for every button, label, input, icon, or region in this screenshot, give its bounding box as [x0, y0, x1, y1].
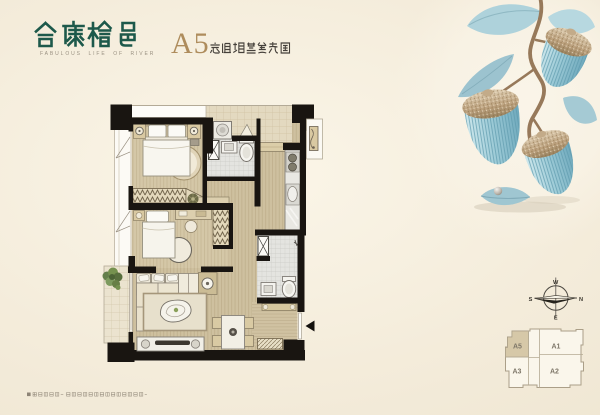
svg-text:N: N [579, 297, 583, 303]
svg-text:A5: A5 [513, 344, 522, 351]
svg-text:A3: A3 [513, 369, 522, 376]
svg-text:E: E [554, 316, 558, 322]
svg-text:S: S [529, 297, 533, 303]
svg-text:A2: A2 [550, 369, 559, 376]
svg-text:W: W [553, 280, 559, 286]
svg-text:A1: A1 [552, 344, 561, 351]
